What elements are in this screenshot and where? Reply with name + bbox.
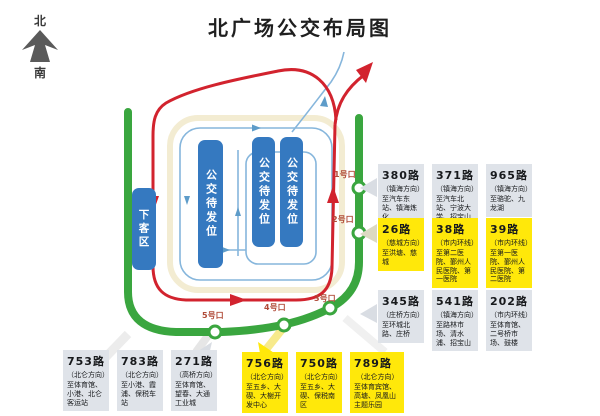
- bus-waiting-bay-1: 公交待发位: [198, 140, 223, 268]
- route-box-756: 756路 （北仑方向） 至五乡、大碶、大榭开发中心: [242, 352, 288, 413]
- route-number: 756路: [246, 355, 285, 371]
- route-box-380: 380路 （镇海方向） 至汽车东站、镇海炼化: [378, 164, 424, 225]
- bus-layout-diagram: 北广场公交布局图 北 南 下客区 公交待发位 公交待发位 公交待发位 1号口 2…: [0, 0, 600, 416]
- route-destinations: 至路林市场、清水浦、招宝山: [436, 321, 475, 347]
- route-destinations: 至五乡、大碶、保税南区: [300, 383, 339, 409]
- route-direction: （北仑方向）: [121, 370, 160, 380]
- route-destinations: 至洪塘、慈城: [382, 249, 421, 267]
- route-destinations: 至体育馆、望春、大通工业城: [175, 381, 214, 407]
- route-direction: （北仑方向）: [67, 370, 106, 380]
- route-destinations: 至第二医院、鄞州人民医院、第一医院: [436, 249, 475, 284]
- route-number: 753路: [67, 353, 106, 369]
- route-box-789: 789路 （北仑方向） 至体育宾馆、高塘、凤凰山主题乐园: [350, 352, 404, 413]
- route-box-26: 26路 （慈城方向） 至洪塘、慈城: [378, 218, 424, 271]
- bus-waiting-bay-3: 公交待发位: [280, 137, 303, 247]
- exit-4-label: 4号口: [264, 302, 286, 313]
- compass-north-label: 北: [34, 12, 46, 29]
- route-direction: （镇海方向）: [436, 184, 475, 194]
- route-number: 371路: [436, 167, 475, 183]
- route-box-271: 271路 （高桥方向） 至体育馆、望春、大通工业城: [171, 350, 217, 411]
- route-number: 26路: [382, 221, 421, 237]
- route-box-202: 202路 （市内环线） 至体育馆、二号桥市场、鼓楼: [486, 290, 532, 351]
- route-direction: （市内环线）: [490, 310, 529, 320]
- route-direction: （镇海方向）: [490, 184, 529, 194]
- route-destinations: 至骆驼、九龙湖: [490, 195, 529, 213]
- route-group-exit-2: 26路 （慈城方向） 至洪塘、慈城 38路 （市内环线） 至第二医院、鄞州人民医…: [378, 218, 532, 288]
- route-direction: （北仑方向）: [354, 372, 401, 382]
- pointer-exit3: [360, 304, 377, 323]
- route-group-exit-5: 753路 （北仑方向） 至体育馆、小港、北仑客运站 783路 （北仑方向） 至小…: [63, 350, 217, 411]
- page-title: 北广场公交布局图: [0, 12, 600, 41]
- route-destinations: 至第一医院、鄞州人民医院、第二医院: [490, 249, 529, 284]
- route-number: 783路: [121, 353, 160, 369]
- route-number: 39路: [490, 221, 529, 237]
- route-number: 38路: [436, 221, 475, 237]
- route-box-371: 371路 （镇海方向） 至汽车北站、宁波大学、招宝山: [432, 164, 478, 225]
- route-direction: （庄桥方向）: [382, 310, 421, 320]
- route-direction: （市内环线）: [490, 238, 529, 248]
- route-group-exit-3: 345路 （庄桥方向） 至环城北路、庄桥 541路 （镇海方向） 至路林市场、清…: [378, 290, 532, 351]
- route-number: 271路: [175, 353, 214, 369]
- route-destinations: 至体育宾馆、高塘、凤凰山主题乐园: [354, 383, 401, 409]
- route-number: 380路: [382, 167, 421, 183]
- exit-2-label: 2号口: [332, 214, 354, 225]
- route-number: 202路: [490, 293, 529, 309]
- route-number: 965路: [490, 167, 529, 183]
- bus-waiting-bay-2: 公交待发位: [252, 137, 275, 247]
- exit-3-label: 3号口: [314, 293, 336, 304]
- route-direction: （镇海方向）: [436, 310, 475, 320]
- exit-5-notch: [209, 326, 221, 338]
- route-group-exit-1: 380路 （镇海方向） 至汽车东站、镇海炼化 371路 （镇海方向） 至汽车北站…: [378, 164, 532, 225]
- route-direction: （北仑方向）: [246, 372, 285, 382]
- exit-4-notch: [278, 319, 290, 331]
- route-destinations: 至五乡、大碶、大榭开发中心: [246, 383, 285, 409]
- route-box-783: 783路 （北仑方向） 至小港、霞浦、保税车站: [117, 350, 163, 411]
- route-box-39: 39路 （市内环线） 至第一医院、鄞州人民医院、第二医院: [486, 218, 532, 288]
- route-box-541: 541路 （镇海方向） 至路林市场、清水浦、招宝山: [432, 290, 478, 351]
- route-box-965: 965路 （镇海方向） 至骆驼、九龙湖: [486, 164, 532, 217]
- route-destinations: 至环城北路、庄桥: [382, 321, 421, 339]
- compass-south-label: 南: [34, 64, 46, 81]
- route-direction: （北仑方向）: [300, 372, 339, 382]
- route-group-exit-4: 756路 （北仑方向） 至五乡、大碶、大榭开发中心 750路 （北仑方向） 至五…: [242, 352, 404, 413]
- route-direction: （慈城方向）: [382, 238, 421, 248]
- route-number: 541路: [436, 293, 475, 309]
- route-destinations: 至体育馆、小港、北仑客运站: [67, 381, 106, 407]
- exit-5-label: 5号口: [202, 310, 224, 321]
- route-box-750: 750路 （北仑方向） 至五乡、大碶、保税南区: [296, 352, 342, 413]
- route-direction: （高桥方向）: [175, 370, 214, 380]
- route-number: 789路: [354, 355, 401, 371]
- route-box-345: 345路 （庄桥方向） 至环城北路、庄桥: [378, 290, 424, 343]
- route-number: 345路: [382, 293, 421, 309]
- route-direction: （镇海方向）: [382, 184, 421, 194]
- route-number: 750路: [300, 355, 339, 371]
- route-destinations: 至体育馆、二号桥市场、鼓楼: [490, 321, 529, 347]
- route-box-38: 38路 （市内环线） 至第二医院、鄞州人民医院、第一医院: [432, 218, 478, 288]
- exit-1-label: 1号口: [334, 169, 356, 180]
- route-direction: （市内环线）: [436, 238, 475, 248]
- route-box-753: 753路 （北仑方向） 至体育馆、小港、北仑客运站: [63, 350, 109, 411]
- drop-off-zone: 下客区: [132, 188, 156, 270]
- route-destinations: 至小港、霞浦、保税车站: [121, 381, 160, 407]
